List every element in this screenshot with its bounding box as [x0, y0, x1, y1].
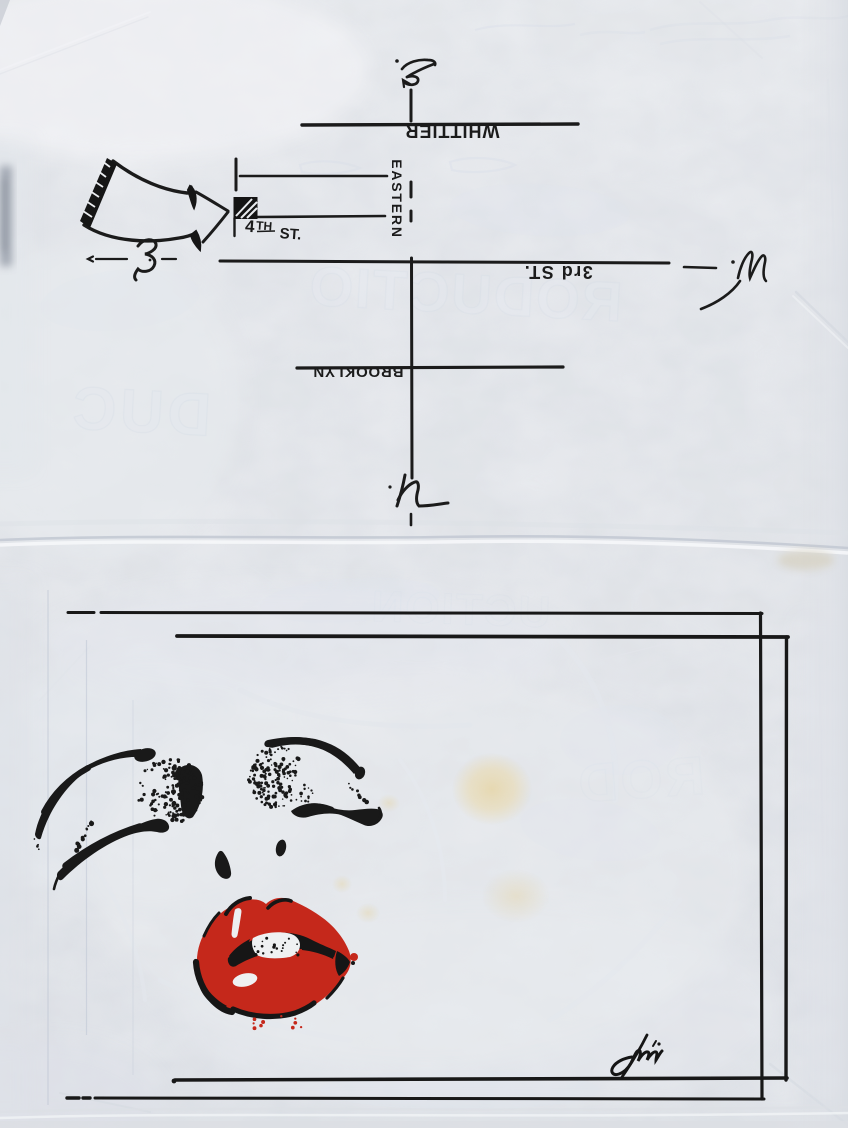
svg-text:WHITTIER: WHITTIER [405, 121, 500, 141]
svg-text:DUC: DUC [67, 374, 212, 448]
svg-text:3rd ST.: 3rd ST. [523, 262, 593, 282]
svg-text:BROOKLYN: BROOKLYN [313, 363, 404, 380]
svg-text:EASTERN: EASTERN [389, 159, 405, 239]
svg-text:ST.: ST. [279, 225, 302, 243]
svg-text:4: 4 [244, 217, 255, 237]
